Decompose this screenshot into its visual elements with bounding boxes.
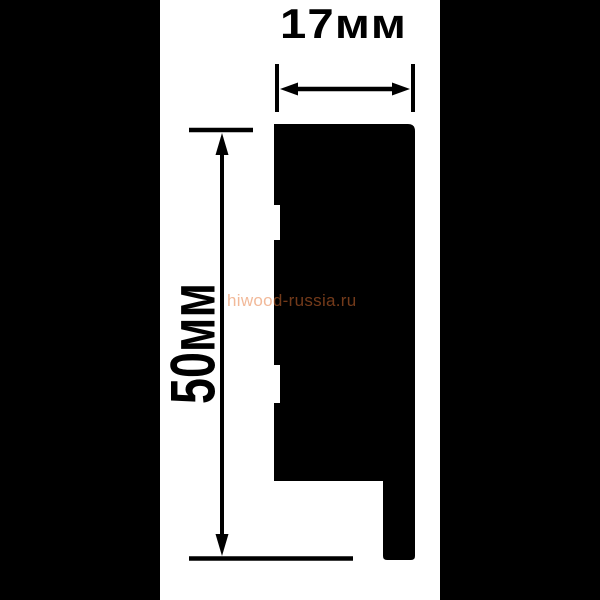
left-letterbox-bar — [0, 0, 160, 600]
height-dimension-label: 50мм — [159, 283, 229, 404]
width-dimension-label: 17мм — [280, 0, 407, 47]
right-letterbox-bar — [440, 0, 600, 600]
site-watermark: hiwood-russia.ru — [227, 291, 357, 310]
profile-drawing: 17мм 50мм hiwood-russia.ru — [0, 0, 600, 600]
product-drawing-canvas: 17мм 50мм hiwood-russia.ru — [0, 0, 600, 600]
